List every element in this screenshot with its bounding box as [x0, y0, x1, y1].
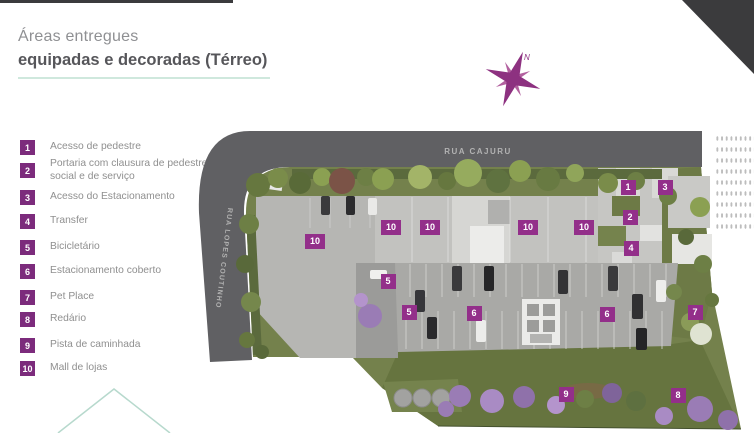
plan-marker-3: 3 [658, 180, 673, 195]
plan-marker-6: 6 [467, 306, 482, 321]
plan-marker-10: 10 [305, 234, 325, 249]
plan-marker-5: 5 [402, 305, 417, 320]
plan-marker-6: 6 [600, 307, 615, 322]
dot-grid-decoration [715, 133, 754, 230]
plan-marker-8: 8 [671, 388, 686, 403]
plan-marker-1: 1 [621, 180, 636, 195]
compass-north-label: N [524, 53, 530, 62]
compass-rose: N [484, 50, 542, 108]
plan-marker-10: 10 [381, 220, 401, 235]
plan-marker-10: 10 [518, 220, 538, 235]
page: Áreas entregues equipadas e decoradas (T… [0, 0, 754, 433]
plan-markers: 123455667891010101010 [0, 0, 754, 433]
plan-marker-10: 10 [574, 220, 594, 235]
plan-marker-4: 4 [624, 241, 639, 256]
plan-marker-10: 10 [420, 220, 440, 235]
plan-marker-9: 9 [559, 387, 574, 402]
plan-marker-5: 5 [381, 274, 396, 289]
plan-marker-7: 7 [688, 305, 703, 320]
plan-marker-2: 2 [623, 210, 638, 225]
